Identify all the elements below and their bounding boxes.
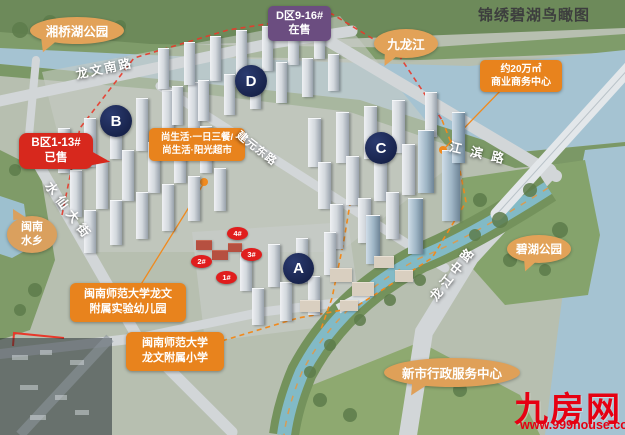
- road-longwen-south: 龙文南路: [74, 52, 135, 83]
- jiulong-river-text: 九龙江: [387, 34, 425, 53]
- business-center-label: 约20万㎡ 商业商务中心: [480, 60, 562, 92]
- callout-tail: [11, 207, 26, 220]
- aerial-rendering: 锦绣碧湖鸟瞰图 D区9-16# 在售 B区1-13# 已售 约20万㎡ 商业商务…: [0, 0, 625, 435]
- primary-school-line2: 龙文附属小学: [128, 351, 222, 366]
- callout-tail: [522, 258, 538, 273]
- page-title: 锦绣碧湖鸟瞰图: [478, 4, 590, 25]
- d-zone-line1: D区9-16#: [276, 9, 323, 23]
- b-zone-sold-label: B区1-13# 已售: [19, 133, 93, 169]
- kindergarten-label: 闽南师范大学龙文 附属实验幼儿园: [70, 283, 186, 322]
- xiangqiao-park-text: 湘桥湖公园: [46, 21, 109, 40]
- callout-tail: [39, 39, 56, 54]
- building-number-2: 2#: [191, 255, 212, 268]
- primary-school-line1: 闽南师范大学: [128, 336, 222, 351]
- minnan-line2: 水乡: [21, 235, 43, 249]
- xiangqiao-park-bubble: 湘桥湖公园: [30, 17, 124, 44]
- kindergarten-line1: 闽南师范大学龙文: [72, 287, 184, 302]
- b-zone-line2: 已售: [21, 151, 91, 166]
- d-zone-line2: 在售: [276, 23, 323, 37]
- building-number-3: 3#: [241, 248, 262, 261]
- label-layer: 锦绣碧湖鸟瞰图 D区9-16# 在售 B区1-13# 已售 约20万㎡ 商业商务…: [0, 0, 625, 435]
- shang-life-label: 尚生活·一日三餐/ 尚生活·阳光超市: [149, 128, 245, 161]
- callout-tail: [86, 150, 111, 171]
- callout-tail: [408, 380, 428, 399]
- b-zone-line1: B区1-13#: [21, 136, 91, 151]
- watermark-url: www.999house.com: [520, 418, 625, 432]
- jiulong-river-bubble: 九龙江: [374, 29, 438, 58]
- kindergarten-line2: 附属实验幼儿园: [72, 302, 184, 317]
- building-number-1: 1#: [216, 271, 237, 284]
- minnan-line1: 闽南: [21, 221, 43, 235]
- admin-center-text: 新市行政服务中心: [402, 363, 502, 382]
- bihu-park-text: 碧湖公园: [516, 241, 562, 257]
- d-zone-sale-label: D区9-16# 在售: [268, 6, 331, 41]
- callout-tail: [382, 53, 398, 69]
- building-number-4: 4#: [227, 227, 248, 240]
- business-center-line1: 约20万㎡: [482, 63, 560, 76]
- road-jiangbin: 江滨路: [448, 136, 515, 169]
- admin-center-bubble: 新市行政服务中心: [384, 358, 520, 387]
- business-center-line2: 商业商务中心: [482, 76, 560, 89]
- zone-marker-d: D: [235, 65, 267, 97]
- shang-life-line2: 尚生活·阳光超市: [151, 144, 243, 157]
- zone-marker-c: C: [365, 132, 397, 164]
- shang-life-line1: 尚生活·一日三餐/: [151, 131, 243, 144]
- bihu-park-bubble: 碧湖公园: [507, 235, 571, 263]
- minnan-water-town-bubble: 闽南 水乡: [7, 216, 57, 253]
- zone-marker-b: B: [100, 105, 132, 137]
- road-longjiang-middle: 龙江中路: [424, 241, 480, 305]
- primary-school-label: 闽南师范大学 龙文附属小学: [126, 332, 224, 371]
- zone-marker-a: A: [283, 253, 314, 284]
